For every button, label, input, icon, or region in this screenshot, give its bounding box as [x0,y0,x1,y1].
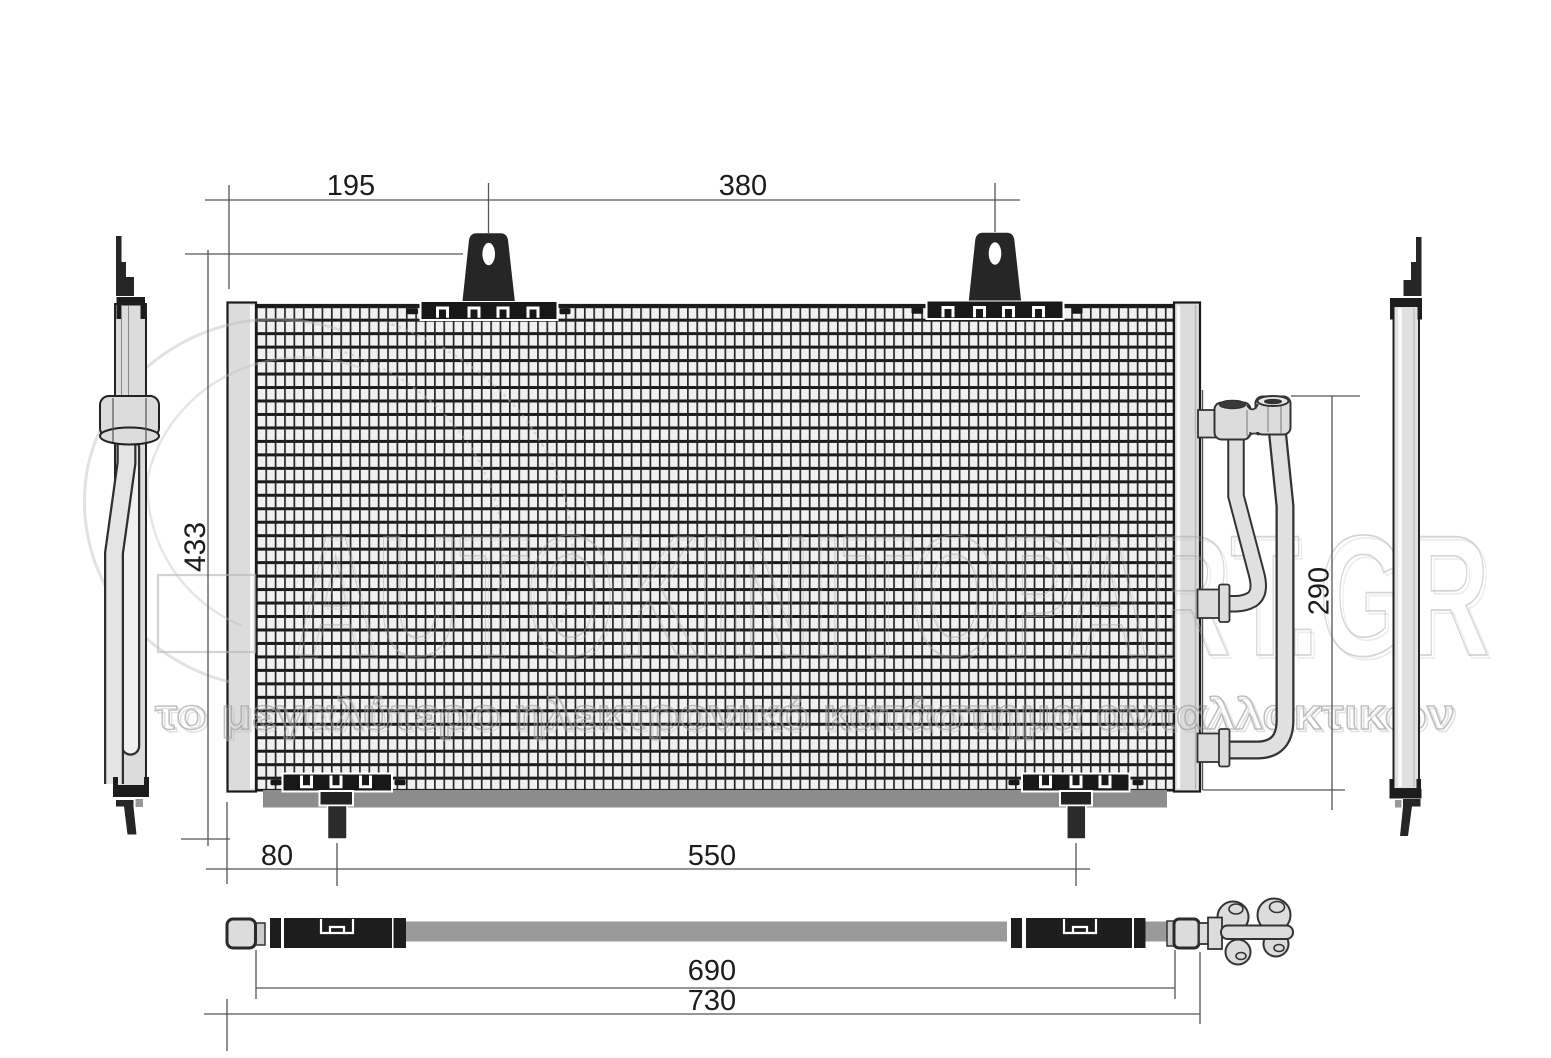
svg-text:433: 433 [179,522,212,572]
svg-text:290: 290 [1304,567,1336,615]
svg-text:550: 550 [688,840,736,872]
svg-text:το μεγαλύτερο ηλεκτρονικό κατά: το μεγαλύτερο ηλεκτρονικό κατάστημα αντα… [155,690,1455,739]
svg-text:380: 380 [719,170,767,202]
svg-text:80: 80 [261,840,293,872]
svg-text:730: 730 [688,985,736,1017]
svg-text:195: 195 [327,170,375,202]
svg-text:690: 690 [688,955,736,987]
